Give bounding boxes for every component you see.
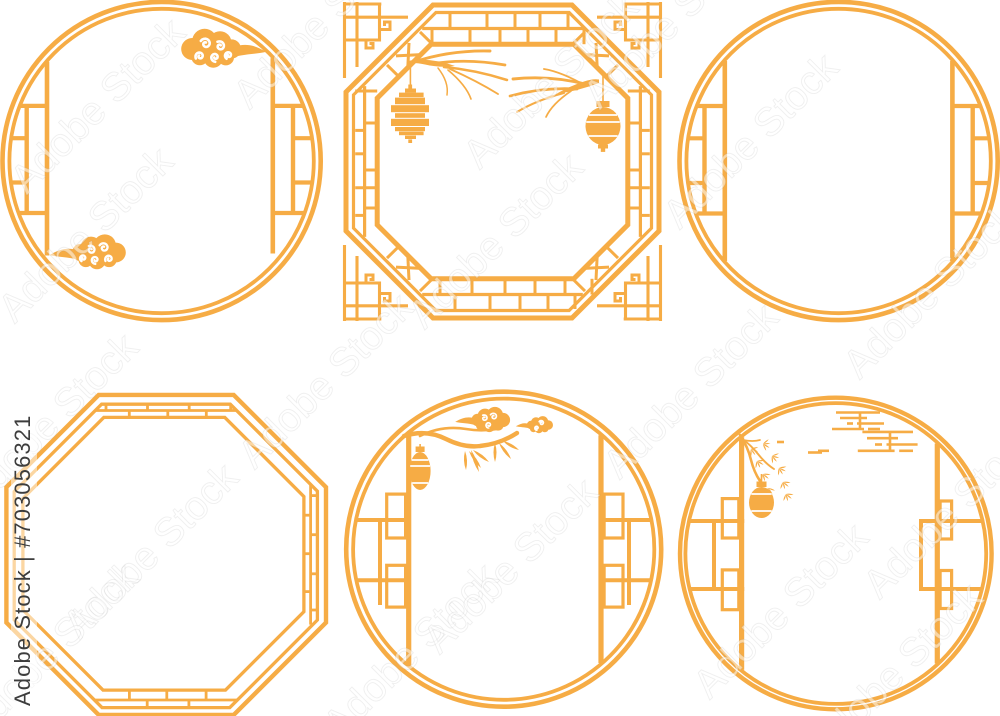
svg-text:Adobe Stock: Adobe Stock [400, 144, 592, 336]
svg-text:Adobe Stock: Adobe Stock [415, 469, 607, 661]
svg-text:Adobe Stock | #703056321: Adobe Stock | #703056321 [10, 415, 35, 706]
svg-text:Adobe Stock: Adobe Stock [855, 414, 1000, 606]
svg-text:Adobe Stock: Adobe Stock [835, 194, 1000, 386]
svg-text:Adobe Stock: Adobe Stock [595, 294, 787, 486]
svg-text:Adobe Stock: Adobe Stock [655, 44, 847, 236]
